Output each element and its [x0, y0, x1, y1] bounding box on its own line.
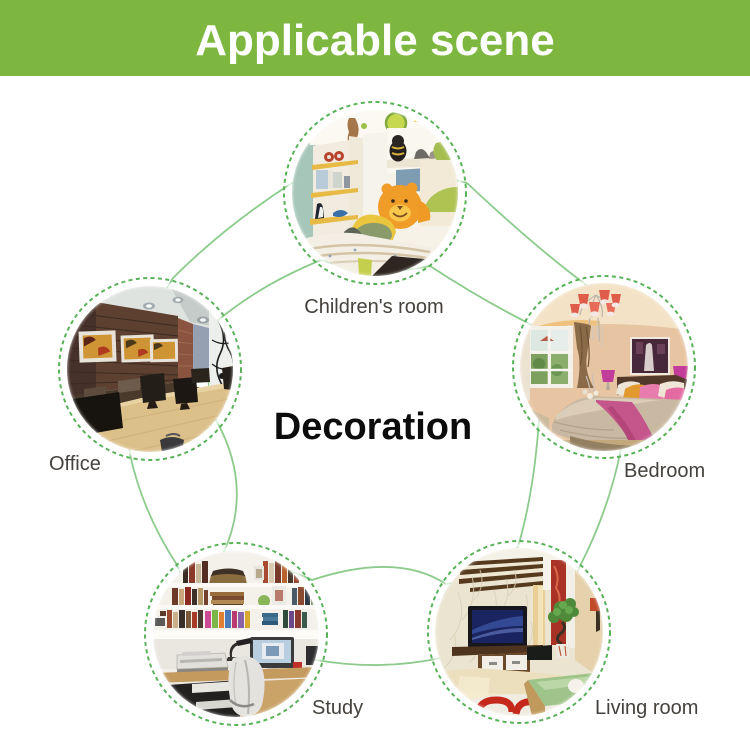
svg-text:Office: Office — [49, 453, 101, 475]
svg-text:Living room: Living room — [595, 697, 698, 719]
svg-text:Decoration: Decoration — [274, 406, 472, 448]
svg-text:Bedroom: Bedroom — [624, 460, 705, 482]
svg-text:Study: Study — [312, 697, 363, 719]
svg-text:Applicable scene: Applicable scene — [195, 16, 554, 65]
svg-text:Children's room: Children's room — [304, 296, 443, 318]
